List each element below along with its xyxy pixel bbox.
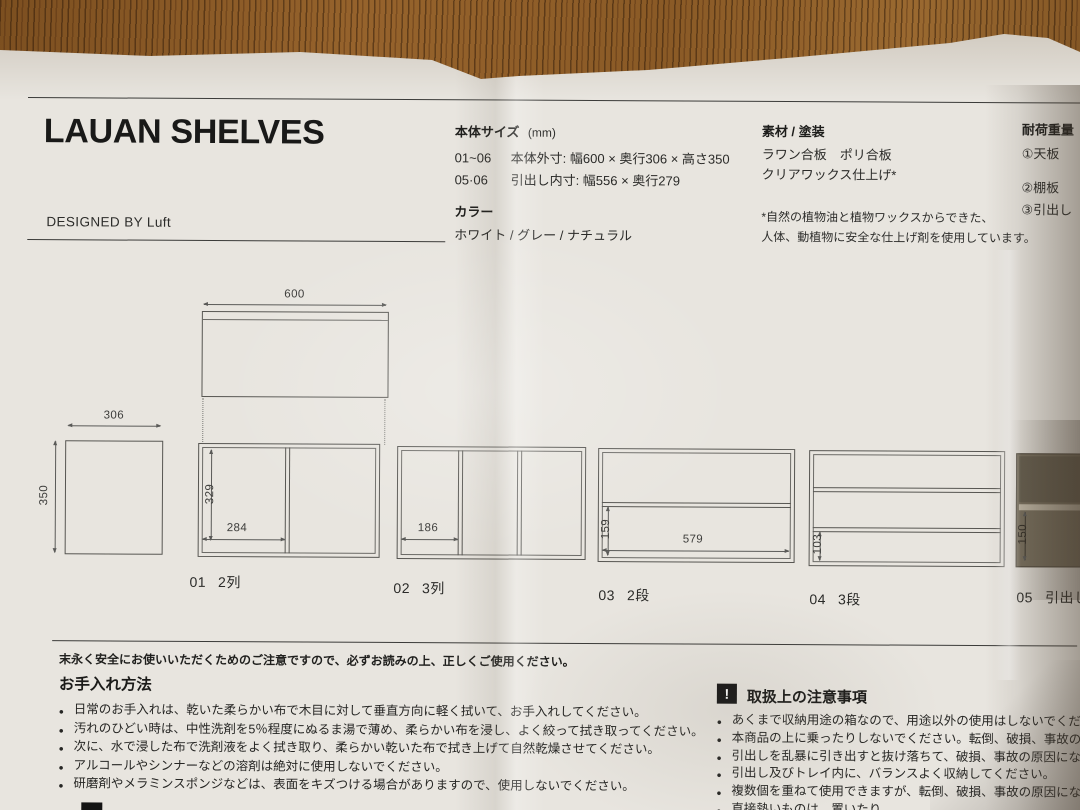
model-name: 2段 [627, 587, 650, 603]
model-04-label: 043段 [809, 589, 860, 609]
arrowhead [53, 440, 57, 445]
color-heading: カラー [454, 201, 493, 220]
size-value: 本体外寸: 幅600 × 奥行306 × 高さ350 [511, 151, 730, 167]
dimension-line [68, 425, 160, 426]
arrowhead [454, 537, 459, 541]
title-divider-rule [27, 239, 445, 242]
load-item-shelf: ②棚板 [1022, 177, 1060, 196]
top-board-edge-line [203, 319, 388, 321]
projection-dotted-line [202, 398, 203, 444]
photo-of-instruction-sheet: LAUAN SHELVES DESIGNED BY Luft 本体サイズ (mm… [0, 0, 1080, 810]
top-view-width-label: 600 [202, 288, 387, 301]
projection-dotted-line [384, 399, 385, 445]
arrowhead [202, 536, 207, 540]
size-row-outer: 01~06本体外寸: 幅600 × 奥行306 × 高さ350 [455, 147, 730, 167]
vertical-divider [517, 451, 523, 556]
care-heading: お手入れ方法 [59, 672, 152, 694]
size-row-drawer: 05·06引出し内寸: 幅556 × 奥行279 [455, 169, 681, 189]
arrowhead [1022, 556, 1026, 561]
materials-note2: 人体、動植物に安全な仕上げ剤を使用しています。 [761, 228, 1036, 246]
horizontal-divider [602, 502, 791, 508]
arrowhead [401, 536, 406, 540]
arrowhead [602, 548, 607, 552]
drawer-front-upper [1019, 456, 1080, 502]
side-view-depth-label: 306 [66, 409, 161, 421]
dimension-line [204, 304, 386, 306]
materials-line2: クリアワックス仕上げ* [762, 164, 897, 184]
arrowhead [605, 551, 609, 556]
model-02-label: 023列 [393, 578, 444, 598]
designer-credit: DESIGNED BY Luft [46, 214, 171, 230]
model-01-height-dim: 329 [204, 484, 216, 504]
top-view-drawing [201, 311, 388, 398]
arrowhead [281, 537, 286, 541]
model-01-drawing: 329 284 [198, 443, 381, 558]
model-02-width-dim: 186 [418, 522, 438, 534]
model-05-label: 05引出し [1016, 587, 1080, 607]
model-01-label: 012列 [189, 572, 240, 592]
page-title: LAUAN SHELVES [44, 112, 325, 152]
care-item: 研磨剤やメラミンスポンジなどは、表面をキズつける場合がありますので、使用しないで… [58, 775, 703, 797]
model-number: 01 [189, 574, 206, 590]
arrowhead [209, 449, 213, 454]
model-number: 02 [393, 580, 410, 596]
handling-item: 引出し及びトレイ内に、バランスよく収納してください。 [716, 765, 1080, 785]
size-heading: 本体サイズ [455, 124, 520, 139]
model-04-drawing: 103 [809, 450, 1006, 567]
model-01-width-dim: 284 [227, 522, 247, 534]
model-03-width-dim: 579 [683, 533, 703, 545]
care-instruction-list: 日常のお手入れは、乾いた柔らかい布で木目に対して垂直方向に軽く拭いて、お手入れし… [58, 700, 703, 796]
size-unit: (mm) [528, 126, 556, 140]
arrowhead [67, 423, 72, 427]
handling-item: 引出しを乱暴に引き出すと抜け落ちて、破損、事故の原因になりますので、 [717, 747, 1080, 767]
warning-icon-partial [81, 802, 102, 810]
side-view-drawing [65, 440, 164, 555]
materials-note1: *自然の植物油と植物ワックスからできた、 [761, 208, 993, 226]
model-03-height-dim: 159 [600, 519, 612, 539]
arrowhead [52, 548, 56, 553]
model-number: 03 [598, 587, 615, 603]
model-name: 引出し [1045, 589, 1080, 605]
handling-precaution-list: あくまで収納用途の箱なので、用途以外の使用はしないでください。 本商品の上に乗っ… [716, 712, 1080, 810]
arrowhead [605, 506, 609, 511]
warning-icon: ! [717, 684, 737, 704]
handling-item: 直接熱いものは、置いたり [716, 801, 1080, 810]
handling-item: あくまで収納用途の箱なので、用途以外の使用はしないでください。 [717, 712, 1080, 732]
handling-heading: 取扱上の注意事項 [747, 686, 867, 708]
load-heading: 耐荷重量 [1022, 119, 1074, 138]
arrowhead [156, 423, 161, 427]
model-03-label: 032段 [598, 585, 649, 605]
size-value: 引出し内寸: 幅556 × 奥行279 [511, 173, 680, 189]
color-options: ホワイト / グレー / ナチュラル [454, 224, 632, 244]
model-02-drawing: 186 [397, 446, 587, 560]
arrowhead [785, 549, 790, 553]
model-number: 04 [809, 591, 826, 607]
horizontal-divider [813, 487, 1001, 493]
drawer-gap-line [1019, 504, 1080, 510]
paper-sheet: LAUAN SHELVES DESIGNED BY Luft 本体サイズ (mm… [0, 0, 1080, 810]
bottom-rule [52, 640, 1077, 646]
arrowhead [1022, 511, 1026, 516]
top-rule [28, 97, 1080, 104]
model-03-drawing: 159 579 [598, 448, 796, 563]
materials-line1: ラワン合板 ポリ合板 [762, 144, 892, 164]
model-05-drawing: 150 [1016, 453, 1080, 567]
handling-item: 本商品の上に乗ったりしないでください。転倒、破損、事故の原因になるこ [717, 729, 1080, 749]
handling-item: 複数個を重ねて使用できますが、転倒、破損、事故の原因になりますので、 [716, 783, 1080, 803]
materials-heading: 素材 / 塗装 [762, 121, 825, 140]
arrowhead [203, 301, 208, 305]
arrowhead [817, 556, 821, 561]
arrowhead [382, 302, 387, 306]
cabinet-inner-line [813, 454, 1002, 563]
load-item-drawer: ③引出し [1021, 199, 1072, 218]
horizontal-divider [813, 527, 1001, 533]
model-name: 3列 [422, 580, 445, 596]
size-heading-row: 本体サイズ (mm) [455, 121, 556, 142]
dimension-line [55, 441, 57, 552]
model-number: 05 [1016, 589, 1033, 605]
side-view-height-label: 350 [38, 485, 50, 505]
model-04-height-dim: 103 [812, 534, 824, 554]
safety-intro: 末永く安全にお使いいただくためのご注意ですので、必ずお読みの上、正しくご使用くだ… [59, 650, 575, 670]
load-item-top: ①天板 [1022, 143, 1060, 162]
printed-content: LAUAN SHELVES DESIGNED BY Luft 本体サイズ (mm… [0, 0, 1080, 810]
model-05-height-dim: 150 [1017, 524, 1029, 544]
model-name: 2列 [218, 574, 241, 590]
model-name: 3段 [838, 591, 861, 607]
size-range: 05·06 [455, 172, 511, 187]
size-range: 01~06 [455, 150, 511, 165]
